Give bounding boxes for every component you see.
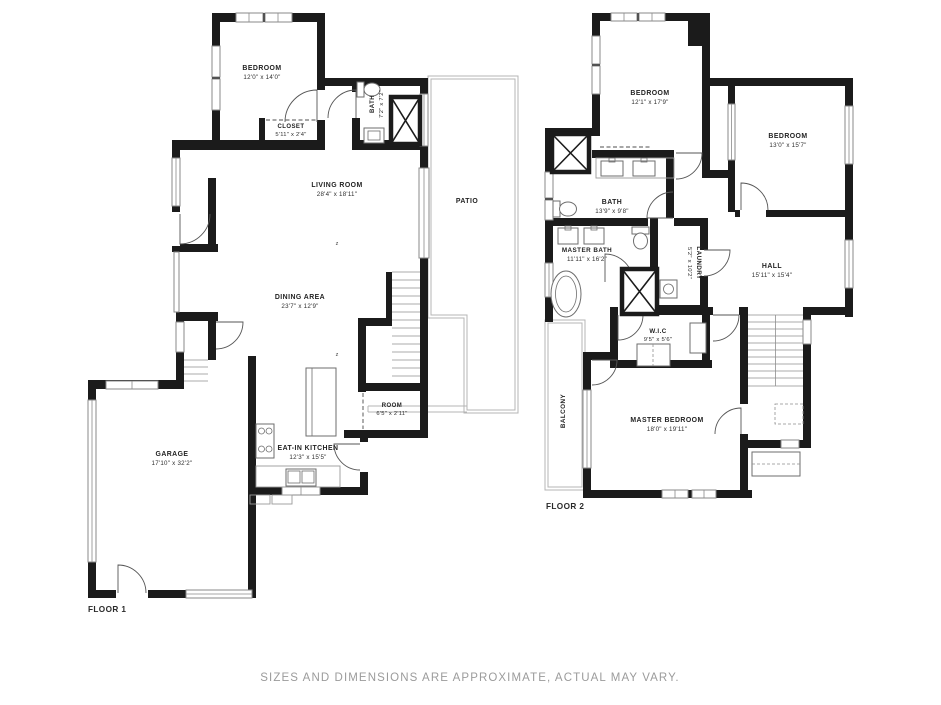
- room-dims-master-bedroom: 18'0" x 19'11": [647, 426, 687, 433]
- room-label-bath1: BATH: [370, 95, 376, 113]
- room-dims-garage: 17'10" x 32'2": [152, 460, 193, 467]
- room-dims-dining: 23'7" x 12'9": [281, 303, 318, 310]
- z-marker: z: [336, 352, 339, 358]
- floor1-walls: [88, 13, 428, 598]
- bath2-vanity: [596, 158, 674, 178]
- z-marker: z: [336, 241, 339, 247]
- kitchen-sink-icon: [286, 469, 316, 486]
- room-dims-laundry: 5'2" x 10'2": [686, 247, 692, 279]
- room-label-closet: CLOSET: [277, 124, 304, 130]
- room-label-kitchen: EAT-IN KITCHEN: [278, 445, 339, 452]
- floor1: BEDROOM 12'0" x 14'0" CLOSET 5'11" x 2'4…: [88, 13, 518, 614]
- floor1-windows: [88, 13, 429, 598]
- room-label-master-bath: MASTER BATH: [562, 247, 612, 254]
- room-dims-hall: 15'11" x 15'4": [752, 272, 792, 279]
- entry-door-arc: [180, 214, 210, 244]
- stoop: [272, 495, 292, 504]
- room-dims-bedroom-right: 13'0" x 15'7": [769, 142, 806, 149]
- room-dims-master-bath: 11'11" x 16'2": [567, 256, 607, 263]
- master-bath-vanity: [558, 226, 604, 244]
- room-dims-bath1: 7'2" x 7'2": [379, 90, 385, 118]
- laundry-door-arc: [704, 250, 730, 276]
- kitchen-counter: [256, 466, 340, 487]
- floor1-stairs: [184, 272, 420, 381]
- floor-plan-drawing: BEDROOM 12'0" x 14'0" CLOSET 5'11" x 2'4…: [0, 0, 941, 705]
- room-label-garage: GARAGE: [156, 451, 189, 458]
- bath1-sink-icon: [364, 128, 384, 143]
- floor1-label: FLOOR 1: [88, 605, 126, 614]
- room-dims-closet: 5'11" x 2'4": [275, 132, 306, 138]
- stove-icon: [256, 424, 274, 458]
- bath2-toilet-icon: [553, 201, 577, 217]
- floor2-stairs: [748, 315, 803, 424]
- wic-dresser: [637, 344, 670, 366]
- washer-icon: [660, 280, 677, 298]
- master-shower-icon: [622, 269, 657, 314]
- room-label-laundry: LAUNDRY: [695, 246, 702, 280]
- floor2-label: FLOOR 2: [546, 502, 584, 511]
- floor-plan-page: BEDROOM 12'0" x 14'0" CLOSET 5'11" x 2'4…: [0, 0, 941, 705]
- bath2-shower-icon: [552, 134, 589, 172]
- floor1-doors: [118, 90, 363, 593]
- room-label-dining: DINING AREA: [275, 294, 325, 301]
- dining-corridor-door-arc: [216, 322, 243, 349]
- wic-door-arc: [618, 315, 643, 340]
- room-dims-room: 6'5" x 2'11": [376, 411, 407, 417]
- bath1-shower-icon: [391, 97, 420, 144]
- room-label-patio: PATIO: [456, 198, 478, 205]
- room-label-bath2: BATH: [602, 199, 622, 206]
- room-dims-bedroom: 12'0" x 14'0": [243, 74, 280, 81]
- wic-shelf: [690, 323, 706, 353]
- room-dims-wic: 9'5" x 5'6": [644, 337, 673, 343]
- room-label-bedroom-right: BEDROOM: [768, 133, 807, 140]
- room-label-wic: W.I.C: [649, 328, 666, 335]
- hall-vestibule-door-arc: [713, 315, 739, 341]
- master-bedroom-door-arc: [715, 408, 741, 434]
- floor2-labels: BEDROOM 12'1" x 17'9" BEDROOM 13'0" x 15…: [560, 90, 808, 433]
- master-toilet-icon: [632, 227, 649, 249]
- bathtub-icon: [551, 271, 581, 317]
- room-dims-bedroom-left: 12'1" x 17'9": [631, 99, 668, 106]
- bedroom-right-door-arc: [741, 183, 768, 210]
- landing-bench: [752, 452, 800, 476]
- bath1-door-arc: [328, 90, 356, 118]
- bedroom-door-arc: [285, 90, 317, 122]
- room-label-balcony: BALCONY: [560, 394, 567, 429]
- room-dims-living-room: 28'4" x 18'11": [317, 191, 357, 198]
- bath1-toilet-icon: [357, 82, 380, 97]
- kitchen-island: [306, 368, 336, 436]
- floor2: BEDROOM 12'1" x 17'9" BEDROOM 13'0" x 15…: [545, 13, 853, 511]
- under-stair-closet: [775, 404, 803, 424]
- room-label-hall: HALL: [762, 263, 782, 270]
- room-label-bedroom: BEDROOM: [242, 65, 281, 72]
- room-label-master-bedroom: MASTER BEDROOM: [630, 417, 703, 424]
- bedroom-left-door-arc: [676, 153, 702, 179]
- room-dims-bath2: 13'9" x 9'8": [595, 208, 629, 215]
- disclaimer-text: SIZES AND DIMENSIONS ARE APPROXIMATE, AC…: [260, 672, 679, 684]
- room-label-room: ROOM: [382, 403, 402, 409]
- room-label-living-room: LIVING ROOM: [311, 182, 362, 189]
- room-label-bedroom-left: BEDROOM: [630, 90, 669, 97]
- room-dims-kitchen: 12'3" x 15'5": [289, 454, 326, 461]
- garage-door-arc: [118, 565, 146, 593]
